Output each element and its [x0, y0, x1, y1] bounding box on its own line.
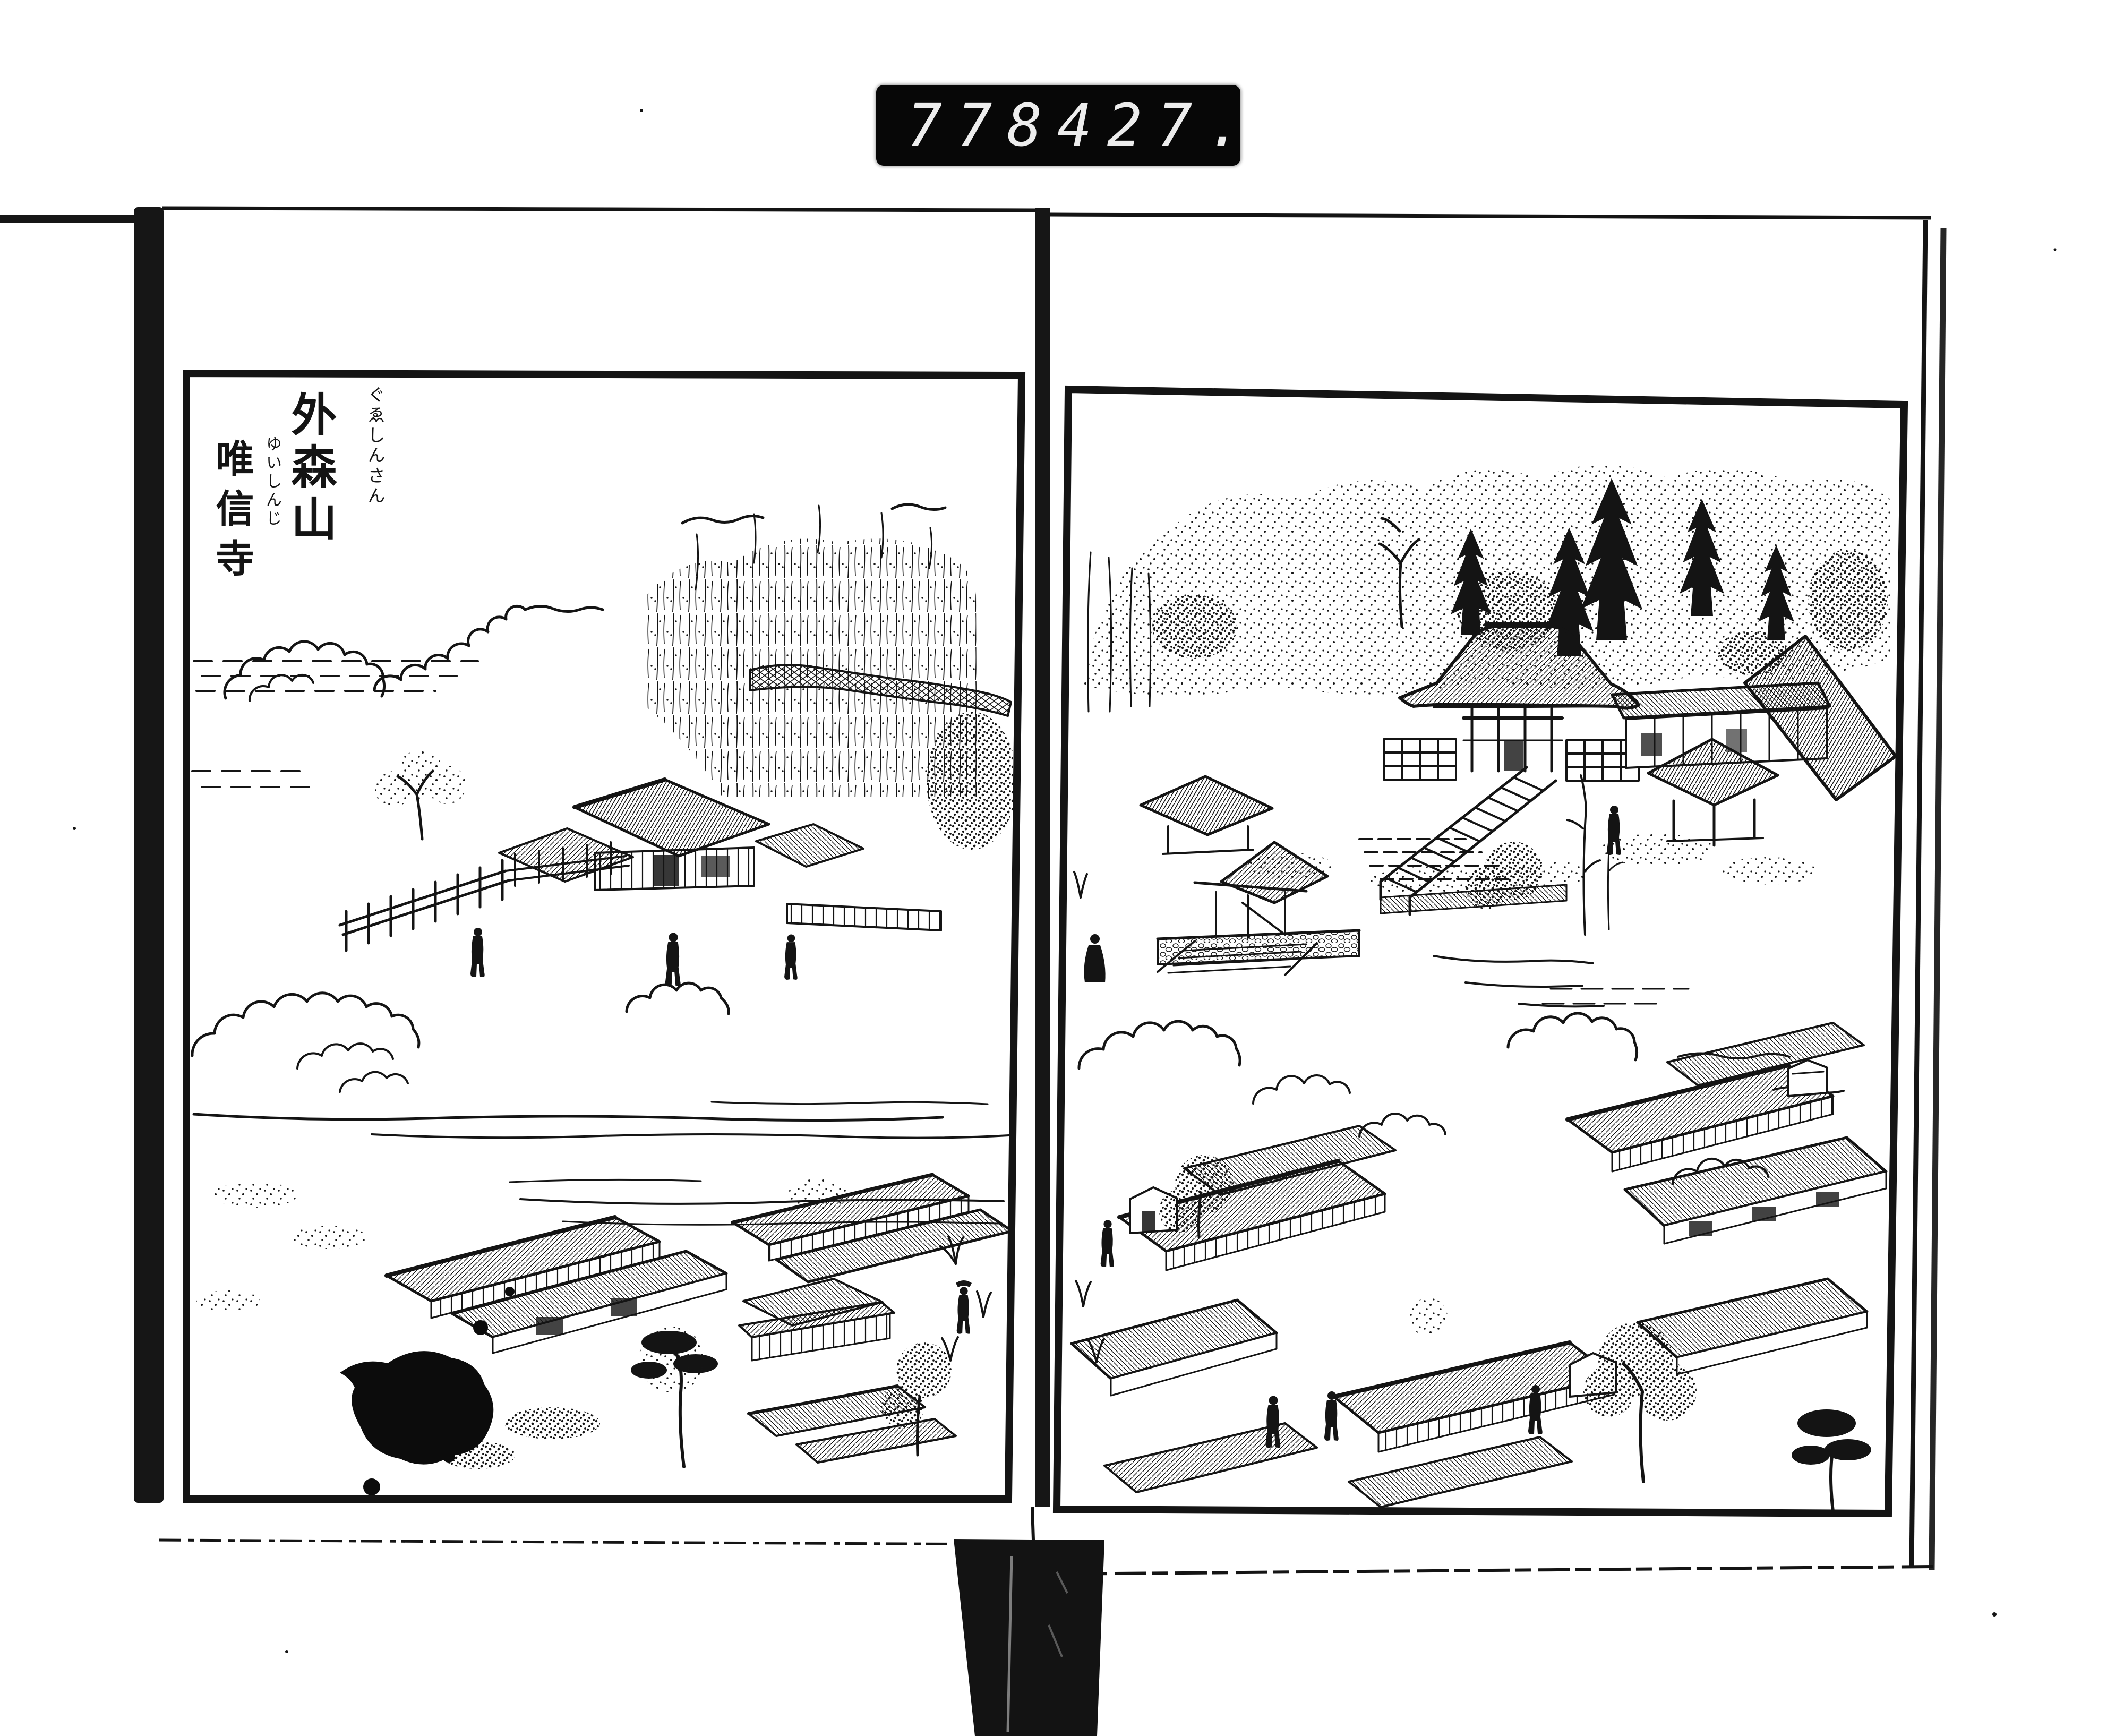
woodblock-illustration [0, 0, 2124, 1736]
hedge-band [1248, 834, 1816, 913]
page-counter: 778 427. [876, 85, 1240, 166]
picket-fence [787, 904, 941, 930]
town-blocks-right [1072, 1023, 1886, 1507]
right-cover-outer-edge [1932, 228, 1943, 1570]
right-page-outer-edge [1912, 220, 1925, 1567]
title-sub-kanji: 唯信寺 [212, 439, 251, 588]
right-page-top-edge [1050, 215, 1931, 218]
counter-right-digits: 427. [1057, 91, 1257, 159]
left-page-illustration [192, 504, 1017, 1495]
right-page-illustration [1072, 465, 1896, 1511]
cloud-squiggles [682, 504, 945, 523]
spine-lower-line [1032, 1507, 1033, 1540]
left-bottom-rough-edge [159, 1540, 1009, 1544]
water-lines-right [1434, 956, 1689, 1006]
corner-shop [739, 1279, 894, 1361]
figure-with-hat [956, 1280, 972, 1334]
title-sub-furigana: ゆいしんじ [264, 435, 280, 528]
counter-left-digits: 778 [907, 91, 1057, 159]
right-bottom-rough-edge [1054, 1567, 1933, 1574]
stipple-tree-left [375, 751, 466, 839]
left-page-top-edge [162, 208, 1037, 210]
pine-tree-left [631, 1327, 718, 1467]
book-edges [0, 109, 2057, 1736]
bottom-clamp-tab [954, 1539, 1104, 1736]
title-main-kanji: 外森山 [287, 391, 332, 547]
walking-figures-left [470, 928, 798, 986]
scanned-book-page: { "document": { "kind": "scanned illustr… [0, 0, 2124, 1736]
top-left-cover-bar [0, 215, 138, 223]
title-main-furigana: ぐゑしんさん [366, 386, 384, 507]
spine-band [1035, 208, 1050, 1507]
thatched-hut [1141, 776, 1272, 854]
left-cover-edge [134, 207, 164, 1503]
